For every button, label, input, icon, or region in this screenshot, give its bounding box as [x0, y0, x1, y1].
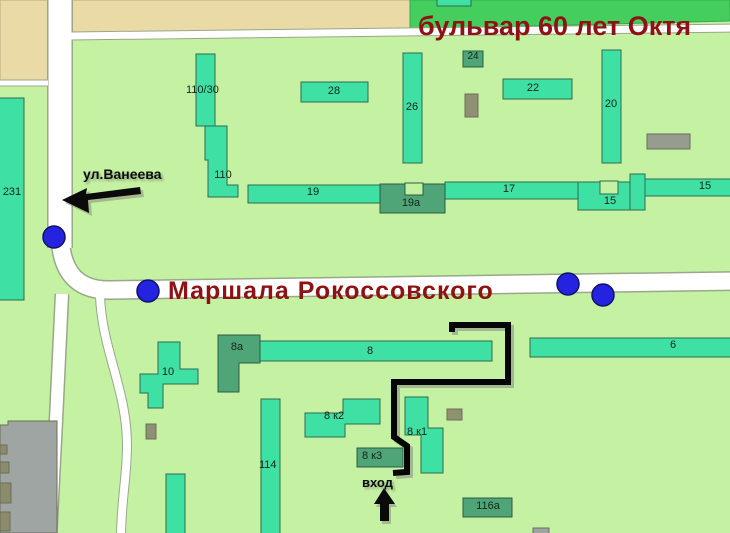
- transit-stop-marker[interactable]: [43, 226, 65, 248]
- building-19a-notch: [405, 183, 423, 195]
- building-unlabeled[interactable]: [166, 474, 185, 533]
- map-graphics: [0, 0, 730, 533]
- shed[interactable]: [647, 134, 690, 149]
- gray-inset: [0, 462, 9, 473]
- gray-inset: [0, 512, 10, 531]
- building-20[interactable]: [602, 50, 621, 163]
- building-6[interactable]: [530, 338, 730, 357]
- building-top-fragment[interactable]: [437, 0, 471, 6]
- shed[interactable]: [533, 528, 549, 533]
- building-8[interactable]: [260, 341, 492, 361]
- parcel-beige-left: [0, 0, 48, 81]
- gray-inset: [0, 483, 11, 503]
- building-17[interactable]: [445, 182, 580, 199]
- building-110-30[interactable]: [196, 54, 215, 126]
- shed[interactable]: [465, 94, 478, 117]
- transit-stop-marker[interactable]: [557, 273, 579, 295]
- building-15-bar[interactable]: [645, 179, 730, 196]
- building-22[interactable]: [503, 79, 572, 99]
- building-116a[interactable]: [463, 498, 512, 517]
- building-28[interactable]: [301, 82, 368, 102]
- building-231[interactable]: [0, 98, 24, 300]
- building-26[interactable]: [403, 53, 422, 163]
- shed[interactable]: [146, 424, 156, 439]
- building-15-block-wing[interactable]: [630, 174, 645, 210]
- gray-inset: [0, 445, 7, 454]
- building-19[interactable]: [248, 185, 380, 203]
- transit-stop-marker[interactable]: [592, 284, 614, 306]
- shed[interactable]: [447, 409, 462, 420]
- transit-stop-marker[interactable]: [137, 280, 159, 302]
- building-8k3[interactable]: [357, 448, 403, 467]
- building-24[interactable]: [463, 51, 483, 67]
- map-canvas[interactable]: бульвар 60 лет Октя Маршала Рокоссовског…: [0, 0, 730, 533]
- building-15-notch: [600, 181, 618, 194]
- building-114[interactable]: [261, 399, 280, 533]
